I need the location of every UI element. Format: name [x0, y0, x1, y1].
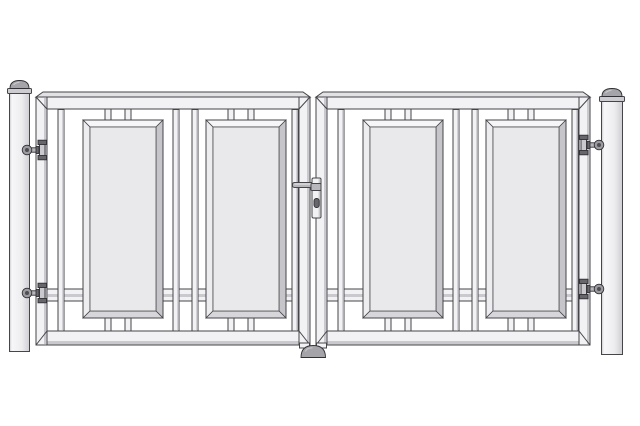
post-collar — [8, 89, 32, 94]
post-collar — [600, 97, 625, 102]
post-body — [10, 94, 30, 352]
center-drop-stop — [300, 343, 327, 358]
post-cap — [602, 89, 622, 97]
lock-cylinder — [314, 199, 319, 208]
right-post — [600, 89, 625, 355]
post-cap — [10, 81, 29, 89]
left-post — [8, 81, 32, 352]
post-body — [602, 102, 623, 355]
canvas — [0, 0, 640, 426]
handle-hub — [311, 184, 321, 191]
gate-illustration — [0, 0, 640, 426]
